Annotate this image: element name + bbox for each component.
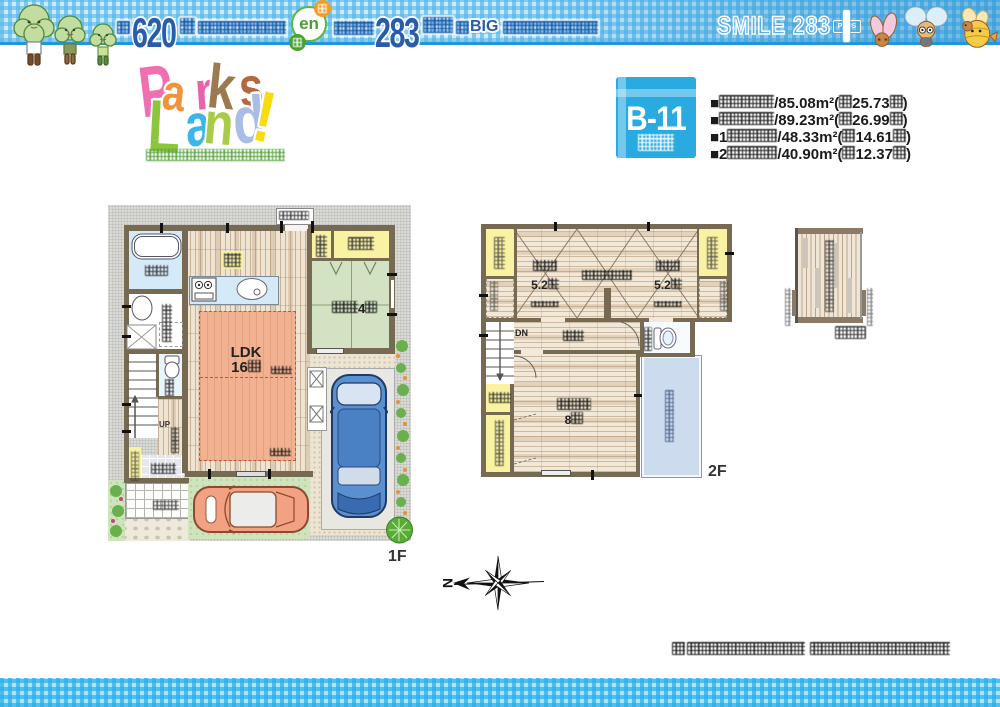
svg-text:N: N [440,578,456,588]
